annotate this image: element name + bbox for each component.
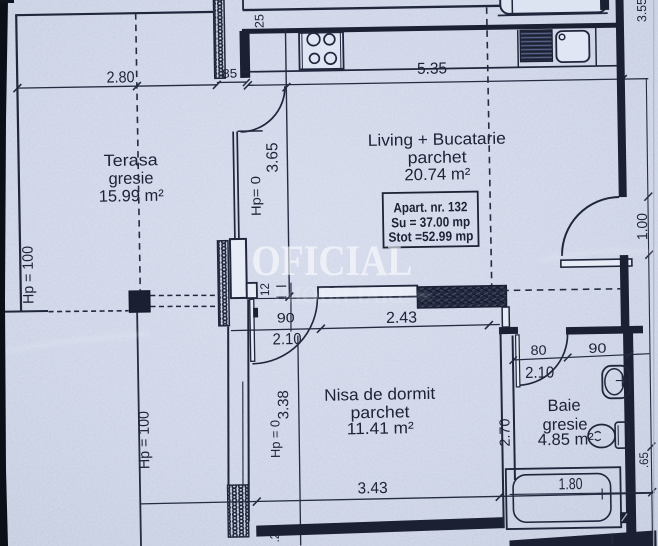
svg-text:2.70: 2.70 bbox=[497, 418, 513, 446]
svg-text:80: 80 bbox=[530, 343, 546, 358]
svg-text:Apart. nr. 132: Apart. nr. 132 bbox=[393, 199, 467, 215]
svg-text:20.74 m²: 20.74 m² bbox=[404, 165, 471, 184]
svg-text:85: 85 bbox=[222, 66, 237, 80]
svg-text:3.55: 3.55 bbox=[634, 0, 649, 22]
svg-text:Hp = 100: Hp = 100 bbox=[135, 411, 153, 469]
svg-text:parchet: parchet bbox=[407, 148, 467, 167]
svg-text:90: 90 bbox=[588, 341, 606, 356]
svg-text:15.99 m²: 15.99 m² bbox=[99, 187, 165, 206]
svg-text:3.38: 3.38 bbox=[275, 390, 292, 419]
svg-text:Living + Bucatarie: Living + Bucatarie bbox=[368, 130, 506, 150]
svg-text:OFICIAL: OFICIAL bbox=[252, 238, 413, 285]
svg-text:Hp = 100: Hp = 100 bbox=[20, 246, 38, 304]
svg-text:gresie: gresie bbox=[108, 169, 153, 188]
svg-text:Hp= 0: Hp= 0 bbox=[248, 176, 264, 216]
svg-text:4.85 m²: 4.85 m² bbox=[538, 430, 595, 449]
svg-text:90: 90 bbox=[277, 310, 295, 325]
svg-text:2.43: 2.43 bbox=[386, 309, 417, 327]
svg-text:Nisa de dormit: Nisa de dormit bbox=[324, 385, 436, 405]
svg-text:3.65: 3.65 bbox=[264, 142, 281, 172]
svg-text:IMOBILIARE: IMOBILIARE bbox=[273, 283, 411, 309]
svg-text:2.10: 2.10 bbox=[525, 364, 554, 381]
svg-text:2.80: 2.80 bbox=[106, 69, 134, 86]
svg-text:3.43: 3.43 bbox=[357, 480, 387, 497]
svg-text:Terasa: Terasa bbox=[104, 151, 159, 170]
svg-text:11.41 m²: 11.41 m² bbox=[347, 419, 415, 438]
svg-text:Hp = 0: Hp = 0 bbox=[267, 420, 283, 458]
svg-text:5.35: 5.35 bbox=[417, 60, 447, 77]
svg-text:1.80: 1.80 bbox=[558, 476, 582, 493]
svg-text:Baie: Baie bbox=[547, 397, 580, 416]
svg-text:25: 25 bbox=[252, 14, 266, 28]
svg-text:.65: .65 bbox=[637, 452, 651, 468]
